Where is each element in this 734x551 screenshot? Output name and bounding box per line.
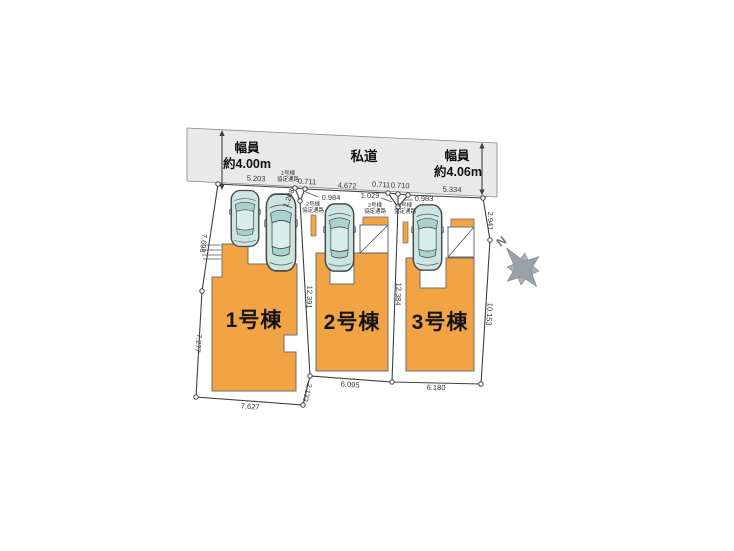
dim-top-lot3: 5.334 [443, 185, 462, 195]
dim-junction2-right: 0.983 [415, 194, 434, 203]
dim-junction2-top-a: 0.711 [372, 180, 391, 190]
car-lot2 [324, 204, 356, 271]
dim-left-upper: 7.698 [198, 233, 209, 253]
dim-mid-step: 2.133 [301, 382, 314, 402]
passage-lot2a-line2: 協定通路 [302, 206, 325, 214]
building-3-approach-strip [403, 222, 408, 243]
dim-bottom-lot1: 7.627 [240, 401, 259, 411]
road-width-right-line1: 幅員 [444, 148, 470, 163]
passage-lot3-line2: 協定通路 [394, 207, 417, 215]
compass-rose: N [479, 222, 554, 301]
building-2-approach-strip [311, 215, 316, 236]
road-width-right-line2: 約4.06m [434, 164, 482, 179]
dim-bottom-lot2: 6.095 [340, 379, 359, 389]
site-plan: 私道 幅員 約4.00m 幅員 約4.06m [0, 0, 734, 551]
compass-north-label: N [494, 233, 509, 249]
dim-right-lower: 10.153 [484, 302, 495, 326]
dim-junction1-right: 0.984 [322, 193, 341, 202]
dim-junction2-top-b: 0.710 [391, 181, 410, 191]
dim-top-lot1: 5.203 [247, 174, 266, 184]
dim-right-upper: 2.941 [486, 212, 495, 231]
site-plan-page: 私道 幅員 約4.00m 幅員 約4.06m [0, 0, 734, 551]
building-2-label: 2号棟 [324, 310, 381, 334]
road-width-left-line2: 約4.00m [223, 156, 271, 171]
building-2-entrance-porch [360, 217, 388, 253]
passage-lot2a-line1: 2号棟 [306, 200, 321, 208]
dim-top-lot2: 4.672 [338, 181, 357, 191]
building-3-label: 3号棟 [412, 310, 469, 334]
passage-lot2b-line2: 協定通路 [364, 207, 387, 215]
road-width-left-line1: 幅員 [234, 140, 260, 155]
car-lot1-a [230, 191, 261, 247]
passage-lot1-line2: 協定通路 [277, 175, 300, 183]
passage-lot3-line1: 3号棟 [398, 201, 413, 209]
dim-bottom-lot3: 6.180 [427, 383, 446, 392]
car-lot3 [412, 205, 444, 270]
passage-lot1-line1: 1号棟 [281, 169, 296, 177]
building-1-label: 1号棟 [226, 308, 283, 332]
dim-division-1-2: 12.391 [305, 285, 315, 308]
dim-junction2-left: 1.029 [361, 191, 380, 200]
building-3-entrance-porch [448, 219, 474, 257]
passage-lot2b-line1: 2号棟 [368, 201, 383, 209]
road-name-label: 私道 [351, 148, 378, 164]
dim-division-2-3: 12.384 [394, 282, 404, 305]
dim-junction1-top: 0.711 [298, 177, 317, 187]
dim-left-lower: 7.277 [193, 333, 204, 353]
